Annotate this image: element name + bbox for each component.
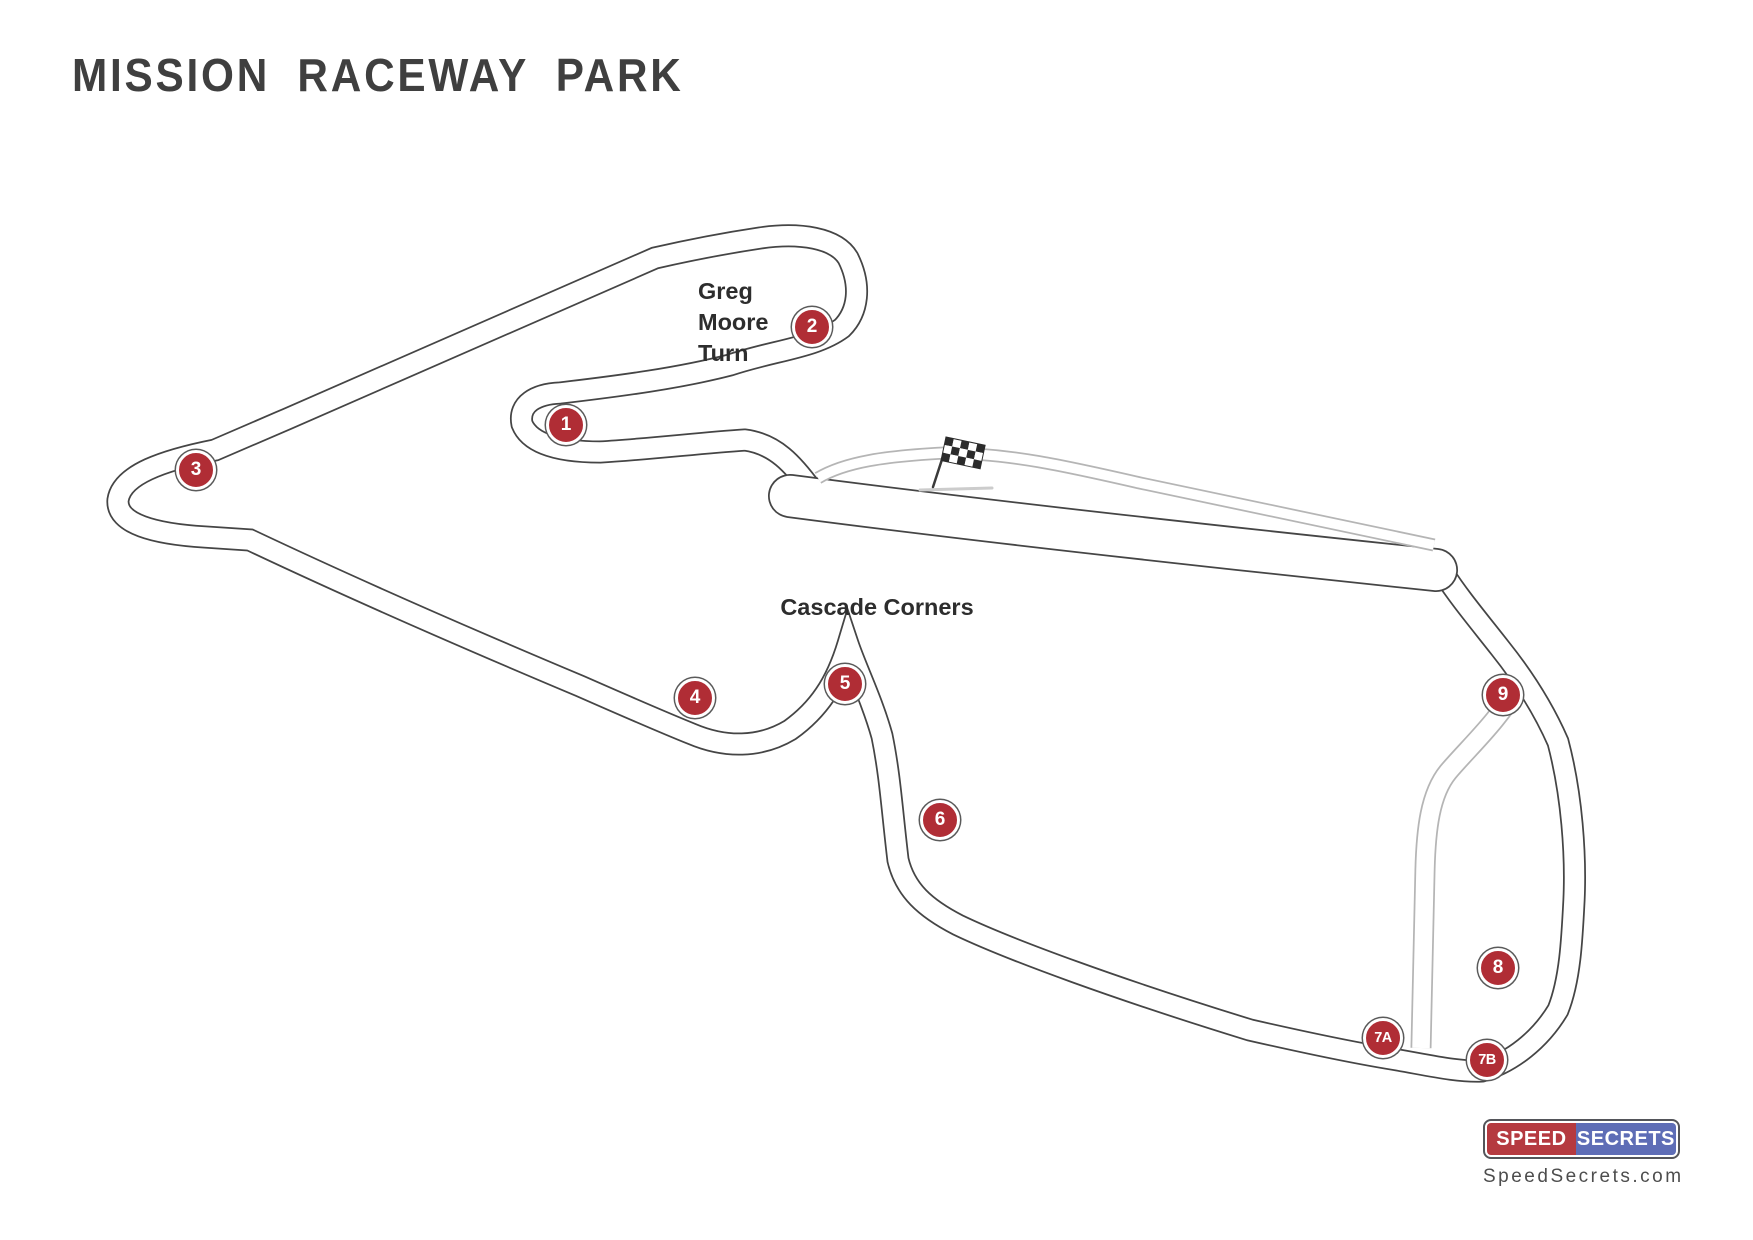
turn-marker-2: 2 [792, 307, 832, 347]
turn-marker-7A: 7A [1363, 1018, 1403, 1058]
circuit-road [118, 236, 1575, 1071]
drag-strip-road [1421, 682, 1520, 1048]
front-straight-road [790, 496, 1436, 570]
logo-speed-segment: SPEED [1487, 1123, 1576, 1155]
logo-site-url: SpeedSecrets.com [1483, 1166, 1680, 1188]
finish-flag-icon [920, 437, 992, 490]
logo-secrets-segment: SECRETS [1576, 1123, 1676, 1155]
turn-marker-8: 8 [1478, 948, 1518, 988]
turn-marker-4: 4 [675, 678, 715, 718]
greg-moore-turn-label: Greg Moore Turn [698, 276, 769, 369]
speed-secrets-logo: SPEED SECRETS SpeedSecrets.com [1483, 1119, 1683, 1188]
turn-marker-6: 6 [920, 800, 960, 840]
cascade-corners-label: Cascade Corners [780, 592, 973, 623]
turn-marker-7B: 7B [1467, 1040, 1507, 1080]
turn-marker-3: 3 [176, 450, 216, 490]
speed-secrets-badge: SPEED SECRETS [1483, 1119, 1680, 1159]
track-map-page: MISSION RACEWAY PARK Greg Moore Turn Cas… [0, 0, 1753, 1240]
page-title: MISSION RACEWAY PARK [72, 48, 684, 102]
turn-marker-9: 9 [1483, 675, 1523, 715]
turn-marker-1: 1 [546, 405, 586, 445]
turn-marker-5: 5 [825, 664, 865, 704]
